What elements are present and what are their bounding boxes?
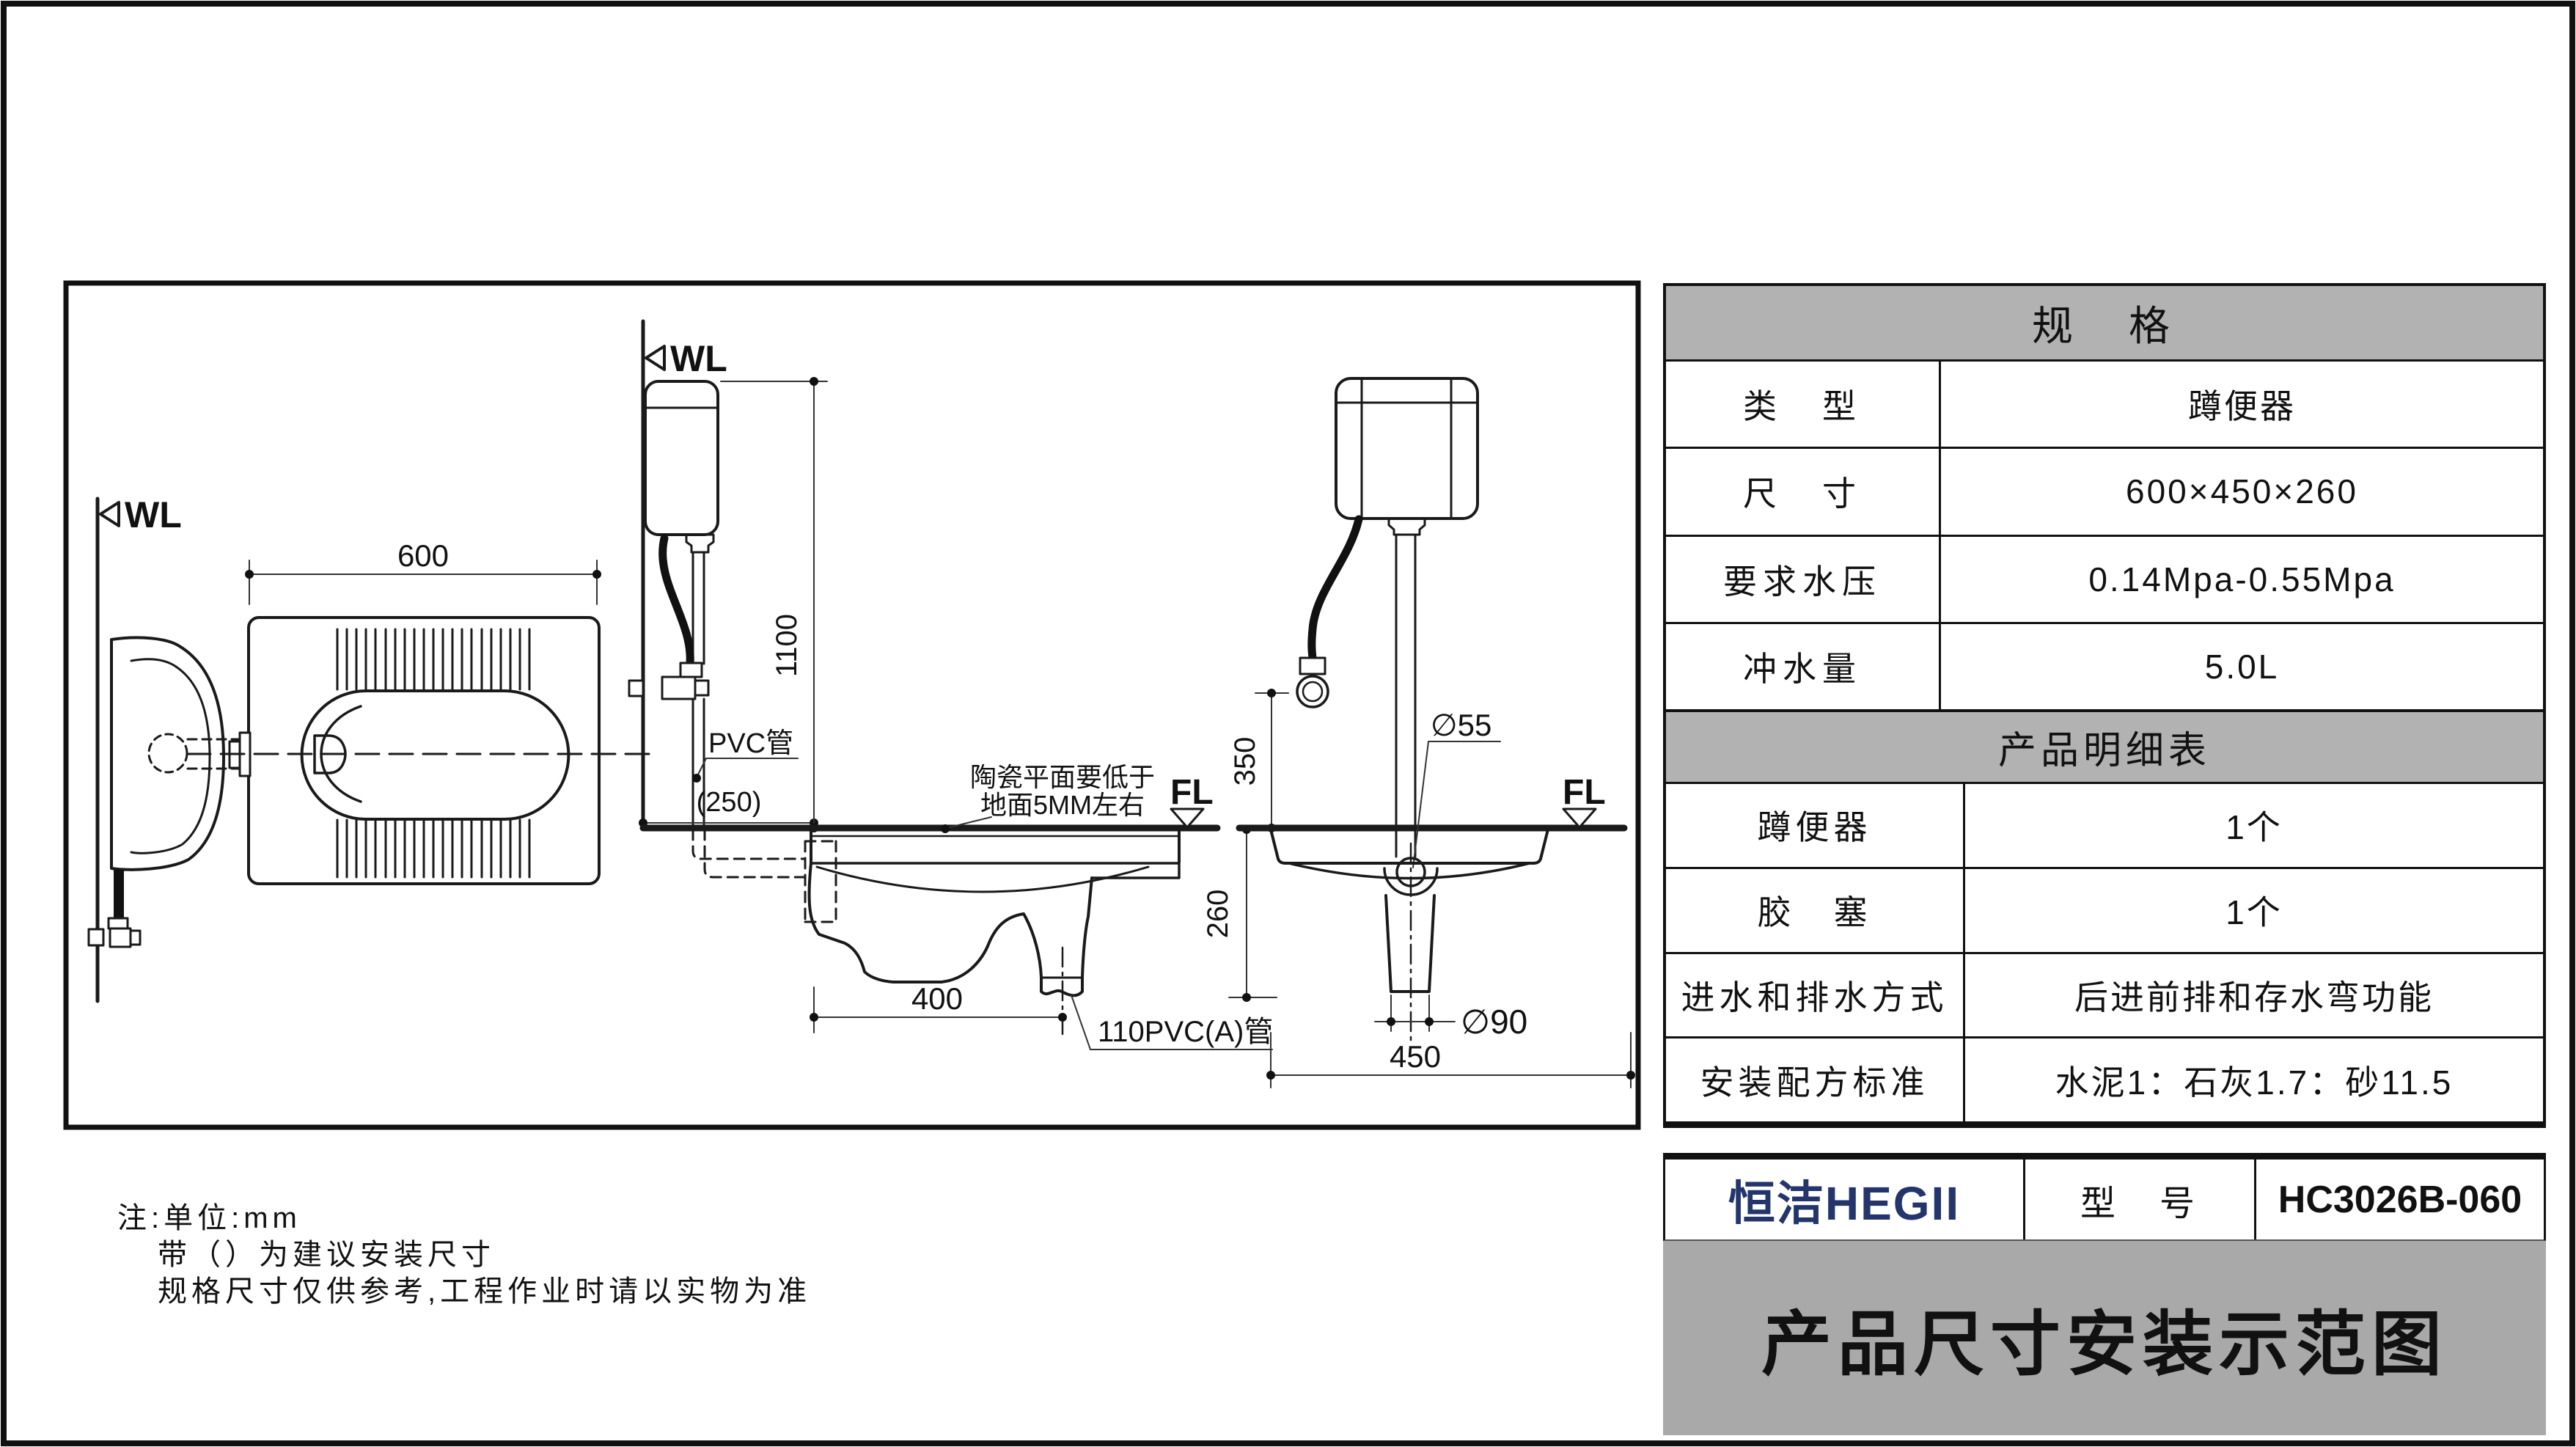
wall-inlet-rosette <box>1297 676 1328 707</box>
spec-row-label: 类 型 <box>1666 362 1941 447</box>
cistern-panel-lines <box>1362 378 1451 519</box>
pvc-pipe-label: PVC管 <box>708 728 793 759</box>
parts-row-value: 后进前排和存水弯功能 <box>1965 954 2543 1037</box>
hose-nut <box>1300 658 1325 674</box>
spec-row-label: 尺 寸 <box>1666 449 1941 534</box>
plan-view <box>187 560 651 884</box>
table-row: 尺 寸 600×450×260 <box>1666 449 2543 536</box>
hose-nut <box>680 663 702 677</box>
wall-level-icon <box>100 502 119 526</box>
title-block-row: 恒洁HEGII 型 号 HC3026B-060 <box>1663 1160 2546 1241</box>
page: WL 600 <box>0 0 2576 1447</box>
bowl-front-arc <box>1289 863 1530 879</box>
table-row: 安装配方标准 水泥1：石灰1.7：砂11.5 <box>1666 1038 2543 1121</box>
dim-600: 600 <box>397 538 449 573</box>
spec-row-label: 要求水压 <box>1666 537 1941 622</box>
angle-valve-body <box>110 928 131 947</box>
brand-logo: 恒洁HEGII <box>1665 1160 2023 1239</box>
anti-slip-ribs-top <box>337 629 529 689</box>
spec-row-value: 蹲便器 <box>1941 362 2543 447</box>
table-row: 要求水压 0.14Mpa-0.55Mpa <box>1666 537 2543 624</box>
model-number: HC3026B-060 <box>2256 1160 2544 1239</box>
dim-250: (250) <box>697 787 762 818</box>
parts-row-value: 1个 <box>1965 784 2543 867</box>
dim-spud-dia: ∅55 <box>1431 708 1491 742</box>
floor-label-middle: FL <box>1170 773 1214 812</box>
note-line: 规格尺寸仅供参考,工程作业时请以实物为准 <box>117 1273 811 1310</box>
cistern-inner-line <box>131 659 210 853</box>
parts-row-label: 胶 塞 <box>1666 869 1965 952</box>
wall-label-middle: WL <box>670 338 727 379</box>
angle-valve-handle <box>131 931 140 945</box>
left-cistern-view <box>89 499 239 1001</box>
bowl-back-arc <box>817 867 1148 892</box>
angle-valve-handle <box>695 681 708 695</box>
valve-wall-flange <box>89 929 103 945</box>
side-elevation-view <box>629 321 1277 1049</box>
supply-hose <box>1312 519 1359 658</box>
title-block: 恒洁HEGII 型 号 HC3026B-060 产品尺寸安装示范图 <box>1663 1153 2546 1435</box>
anti-slip-ribs-bottom <box>337 820 529 877</box>
flush-pipe <box>1396 535 1415 857</box>
outlet-front <box>1386 895 1434 992</box>
pipe-nut <box>109 918 128 928</box>
dim-260: 260 <box>1202 890 1234 939</box>
spec-row-label: 冲水量 <box>1666 624 1941 709</box>
hidden-inlet-circle <box>149 734 187 772</box>
parts-table: 产品明细表 蹲便器 1个 胶 塞 1个 进水和排水方式 后进前排和存水弯功能 安… <box>1663 712 2546 1128</box>
parts-row-value: 1个 <box>1965 869 2543 952</box>
parts-row-label: 进水和排水方式 <box>1666 954 1965 1037</box>
table-row: 进水和排水方式 后进前排和存水弯功能 <box>1666 954 2543 1039</box>
table-row: 蹲便器 1个 <box>1666 784 2543 869</box>
parts-row-value: 水泥1：石灰1.7：砂11.5 <box>1965 1038 2543 1121</box>
cistern-side <box>645 381 718 535</box>
dim-350: 350 <box>1229 737 1261 786</box>
drawing-title: 产品尺寸安装示范图 <box>1663 1241 2546 1435</box>
dim-450: 450 <box>1390 1039 1441 1074</box>
wall-label-left: WL <box>125 494 182 535</box>
ceramic-note-line2: 地面5MM左右 <box>980 790 1145 820</box>
angle-valve-body <box>662 677 695 699</box>
floor-label-right: FL <box>1563 773 1606 812</box>
parts-table-title: 产品明细表 <box>1666 712 2543 784</box>
note-line: 注:单位:mm <box>117 1200 811 1237</box>
model-label: 型 号 <box>2023 1160 2256 1239</box>
notes: 注:单位:mm 带（）为建议安装尺寸 规格尺寸仅供参考,工程作业时请以实物为准 <box>117 1200 811 1310</box>
supply-hose <box>663 538 691 663</box>
wall-level-icon <box>646 346 664 370</box>
supply-pipe <box>114 870 124 918</box>
spec-row-value: 0.14Mpa-0.55Mpa <box>1941 537 2543 622</box>
spec-row-value: 600×450×260 <box>1941 449 2543 534</box>
drawing-panel-border <box>66 283 1638 1127</box>
table-row: 冲水量 5.0L <box>1666 624 2543 709</box>
flush-valve-neck <box>686 535 713 552</box>
dim-400: 400 <box>911 981 963 1016</box>
parts-row-label: 蹲便器 <box>1666 784 1965 867</box>
spec-table-title: 规 格 <box>1666 286 2543 362</box>
flush-valve-neck <box>1389 519 1425 535</box>
dim-1100: 1100 <box>771 614 803 677</box>
dim-outlet-dia: ∅90 <box>1461 1003 1527 1041</box>
ceramic-note-line1: 陶瓷平面要低于 <box>970 762 1155 792</box>
valve-wall-flange <box>629 681 643 696</box>
drain-pipe-label: 110PVC(A)管 <box>1098 1016 1273 1048</box>
cistern-front <box>1336 378 1478 519</box>
table-row: 类 型 蹲便器 <box>1666 362 2543 449</box>
spec-table: 规 格 类 型 蹲便器 尺 寸 600×450×260 要求水压 0.14Mpa… <box>1663 283 2546 712</box>
note-line: 带（）为建议安装尺寸 <box>117 1237 811 1273</box>
table-row: 胶 塞 1个 <box>1666 869 2543 954</box>
pan-underside-profile <box>810 863 1092 995</box>
parts-row-label: 安装配方标准 <box>1666 1038 1965 1121</box>
spec-row-value: 5.0L <box>1941 624 2543 709</box>
